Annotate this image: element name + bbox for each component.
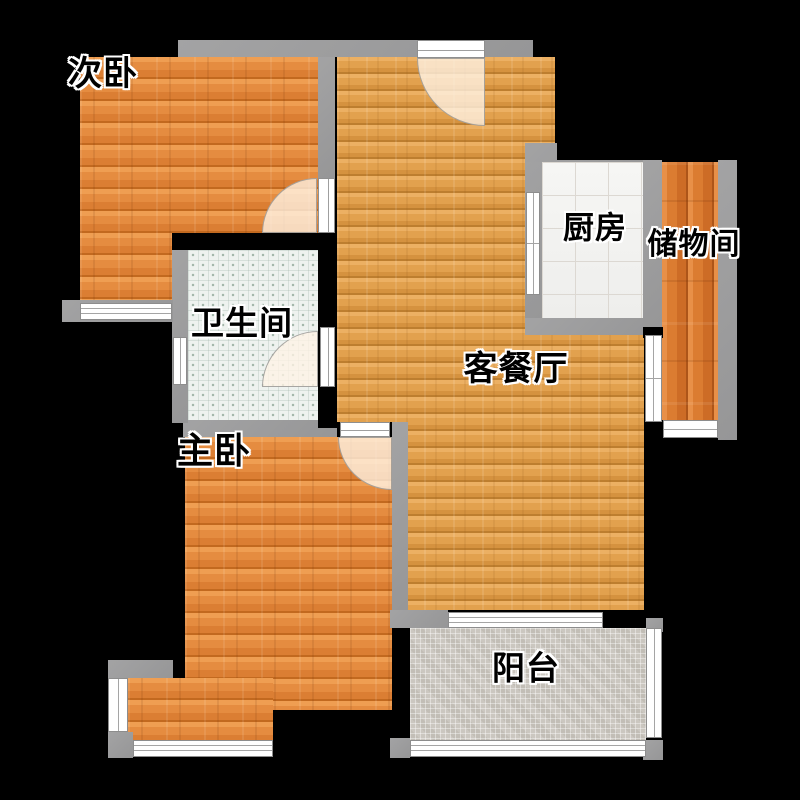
room-label-master-bedroom: 主卧	[177, 433, 251, 469]
room-label-bathroom: 卫生间	[191, 307, 293, 340]
room-label-living-dining: 客餐厅	[464, 352, 569, 386]
floor-plan: 次卧 卫生间 厨房 储物间 客餐厅 主卧 阳台	[0, 0, 800, 800]
window-balcony-top	[448, 612, 603, 628]
floor-master-bedroom-extension	[128, 678, 273, 740]
room-label-storage: 储物间	[648, 230, 741, 260]
wall-master-living-divider	[392, 422, 408, 620]
window-secondary-bedroom	[80, 303, 172, 320]
room-label-secondary-bedroom: 次卧	[68, 57, 138, 91]
window-master-bottom	[133, 740, 273, 757]
window-bathroom	[173, 337, 187, 385]
window-storage-bottom	[663, 420, 718, 438]
wall-balcony-bottom-left	[390, 738, 410, 758]
window-storage-left	[645, 335, 662, 422]
room-label-kitchen: 厨房	[563, 213, 627, 244]
wall-master-window-corner-top	[108, 660, 173, 678]
floor-secondary-bedroom-extension	[80, 233, 172, 302]
wall-kitchen-bottom	[525, 318, 662, 335]
wall-storage-right	[718, 160, 737, 440]
window-master-left	[108, 678, 128, 732]
wall-balcony-top-right-black	[603, 610, 646, 628]
wall-balcony-bottom-right	[643, 740, 663, 760]
wall-balcony-top-left	[390, 610, 448, 628]
wall-kitchen-storage-top-black	[557, 130, 740, 160]
wall-bathroom-top-black	[172, 233, 335, 250]
wall-secondary-bedroom-right	[318, 57, 335, 178]
door-entrance	[417, 40, 485, 58]
room-label-balcony: 阳台	[492, 652, 560, 685]
door-secondary-bedroom	[318, 178, 335, 233]
door-bathroom	[320, 327, 335, 387]
door-master-bedroom	[340, 422, 390, 437]
wall-master-window-corner-bottom	[108, 732, 133, 758]
window-kitchen	[526, 192, 540, 295]
window-balcony-bottom	[410, 740, 646, 757]
floor-storage	[662, 162, 718, 420]
window-balcony-right	[646, 628, 662, 738]
